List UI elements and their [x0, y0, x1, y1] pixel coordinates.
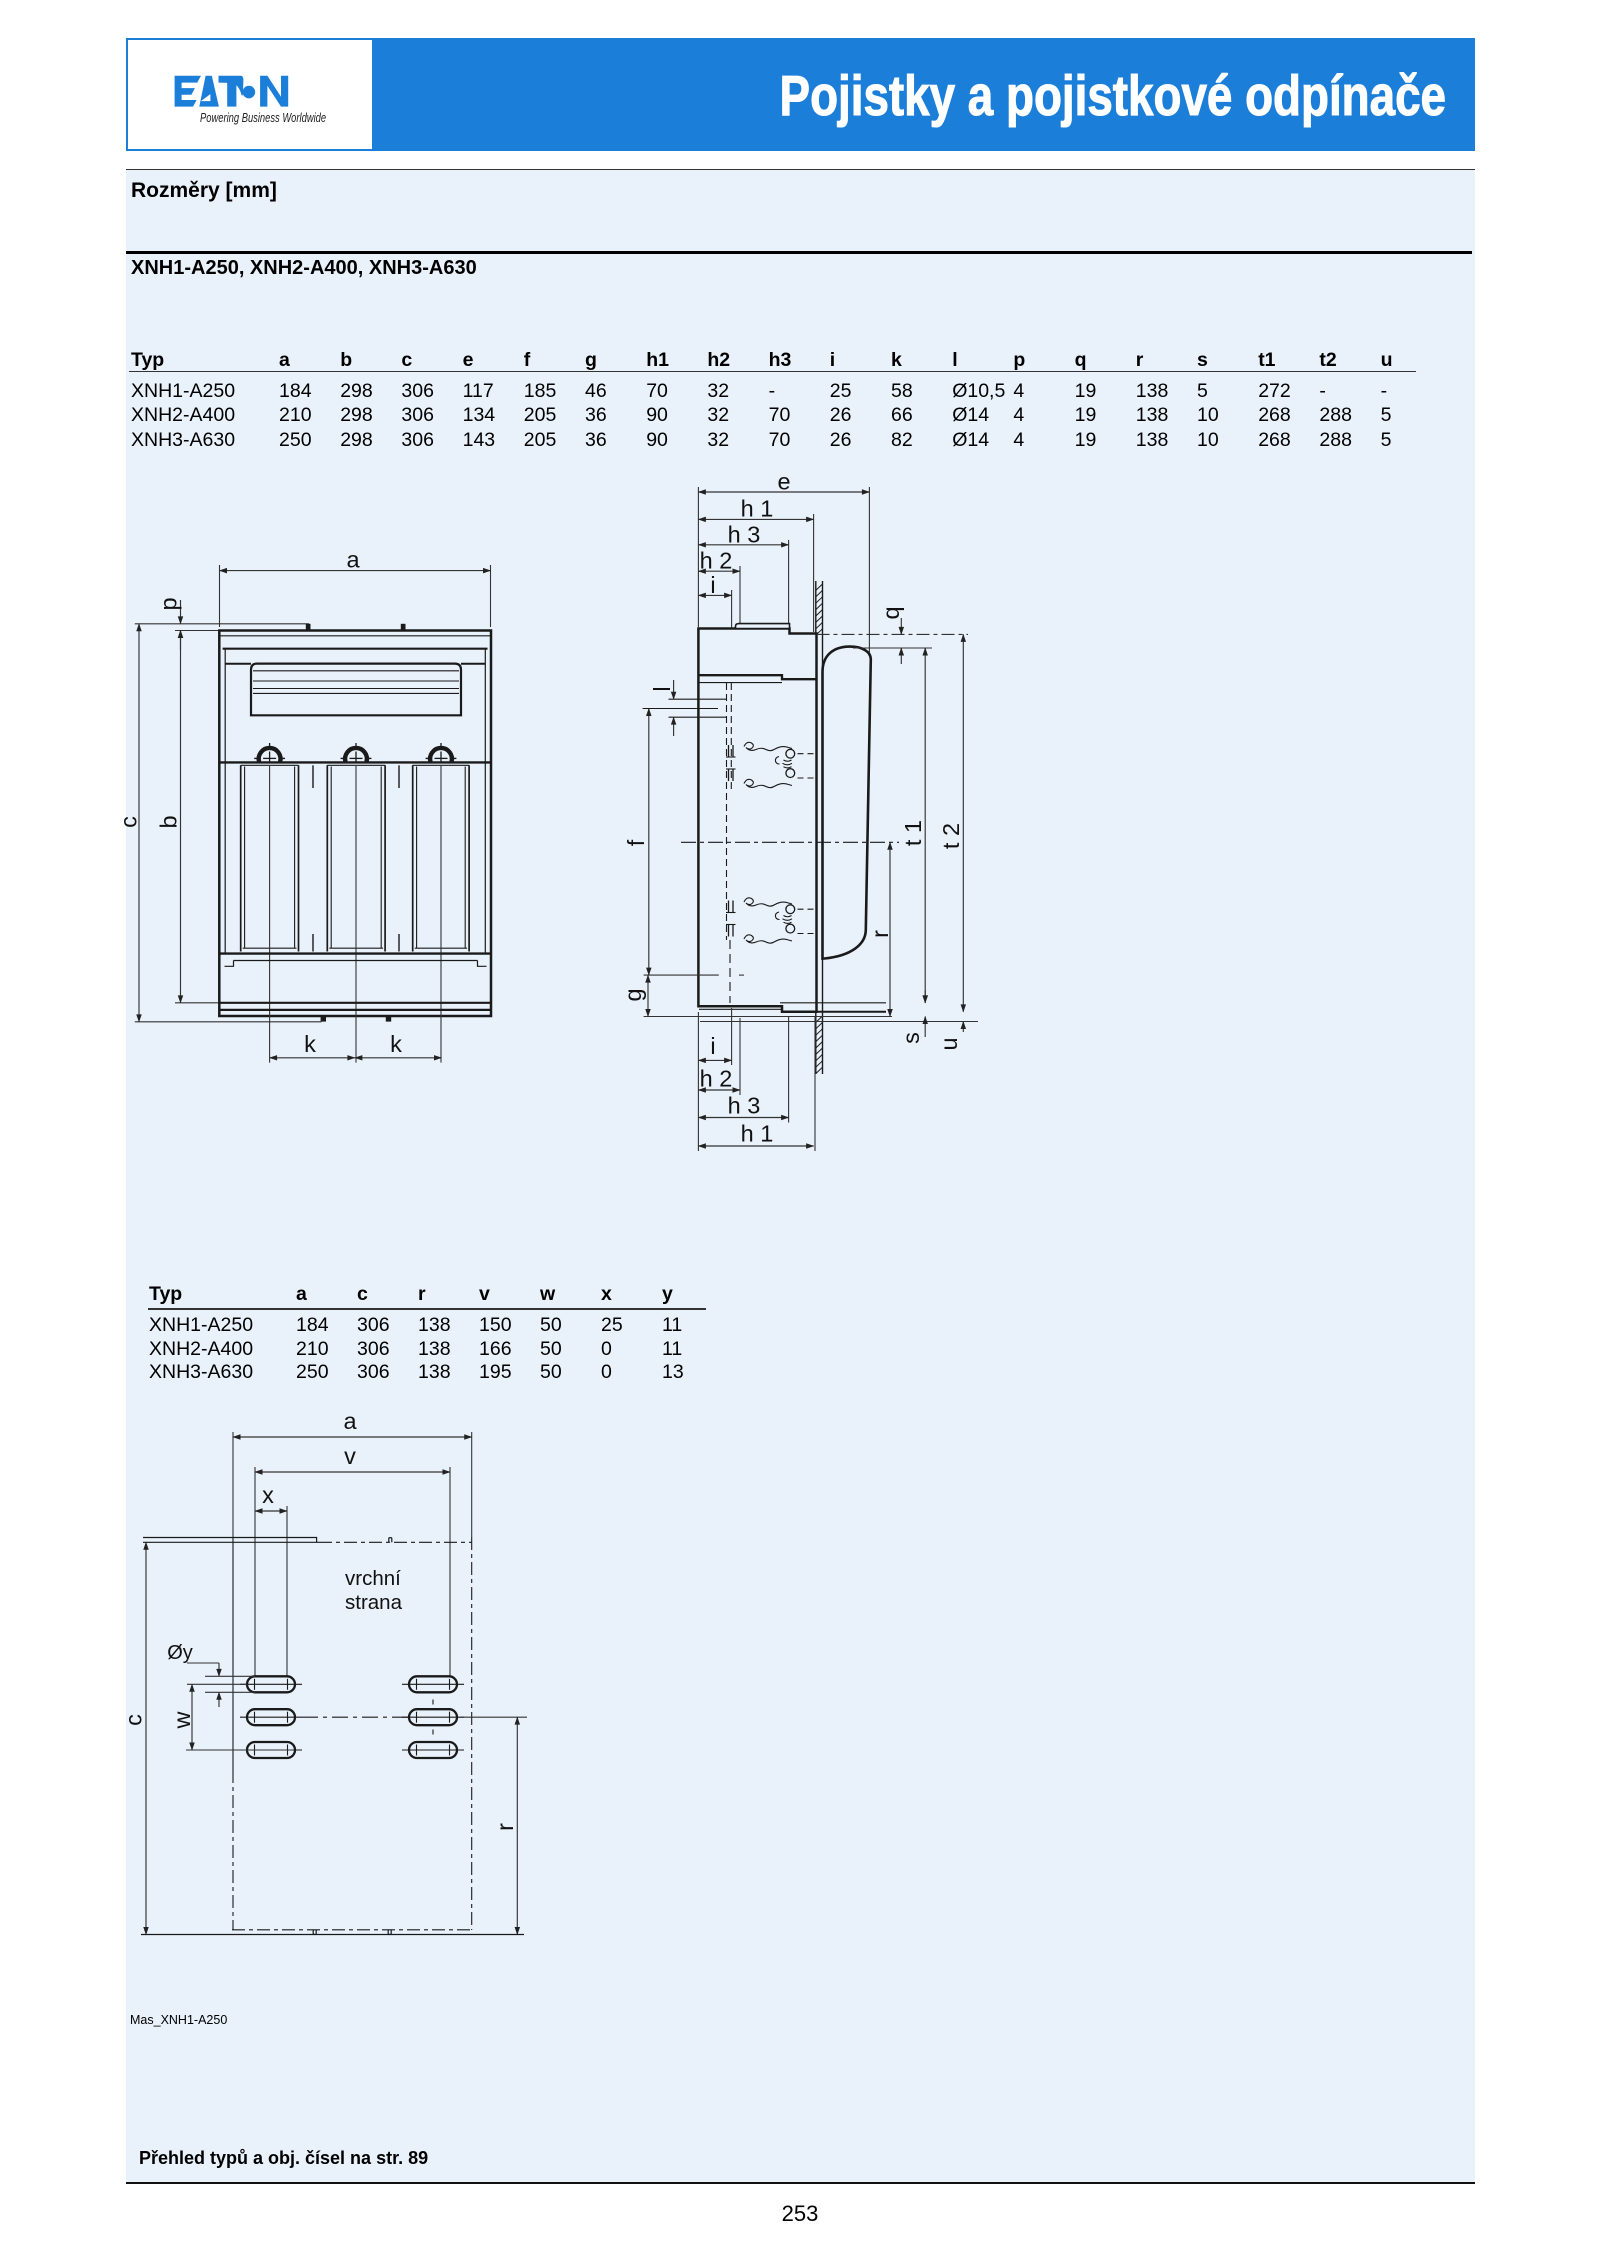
svg-text:v: v	[344, 1443, 356, 1469]
svg-text:e: e	[777, 469, 790, 495]
svg-text:r: r	[492, 1823, 518, 1831]
svg-text:w: w	[169, 1710, 195, 1729]
svg-text:a: a	[343, 1408, 357, 1434]
svg-text:l: l	[649, 686, 675, 691]
svg-text:h 2: h 2	[700, 548, 733, 574]
svg-text:h 2: h 2	[700, 1066, 733, 1092]
svg-text:f: f	[623, 839, 649, 846]
svg-text:g: g	[620, 988, 646, 1001]
svg-text:strana: strana	[345, 1591, 403, 1614]
svg-text:Øy: Øy	[167, 1642, 193, 1664]
svg-text:a: a	[346, 547, 360, 573]
svg-text:c: c	[121, 1714, 147, 1726]
svg-text:x: x	[262, 1482, 274, 1508]
svg-text:h 1: h 1	[741, 1121, 774, 1147]
svg-text:k: k	[304, 1031, 316, 1057]
svg-text:t 2: t 2	[938, 823, 964, 849]
svg-text:t 1: t 1	[900, 820, 926, 846]
svg-text:p: p	[156, 597, 182, 610]
svg-text:s: s	[898, 1032, 924, 1044]
svg-text:r: r	[867, 930, 893, 938]
svg-text:c: c	[116, 816, 142, 828]
svg-text:h 3: h 3	[728, 1093, 761, 1119]
svg-text:k: k	[390, 1031, 402, 1057]
svg-text:u: u	[936, 1037, 962, 1050]
svg-text:b: b	[156, 815, 182, 828]
svg-text:i: i	[710, 1033, 715, 1059]
svg-text:q: q	[878, 606, 904, 619]
svg-text:h 3: h 3	[728, 522, 761, 548]
svg-text:i: i	[710, 572, 715, 598]
svg-text:vrchní: vrchní	[345, 1567, 401, 1590]
svg-text:h 1: h 1	[741, 496, 774, 522]
